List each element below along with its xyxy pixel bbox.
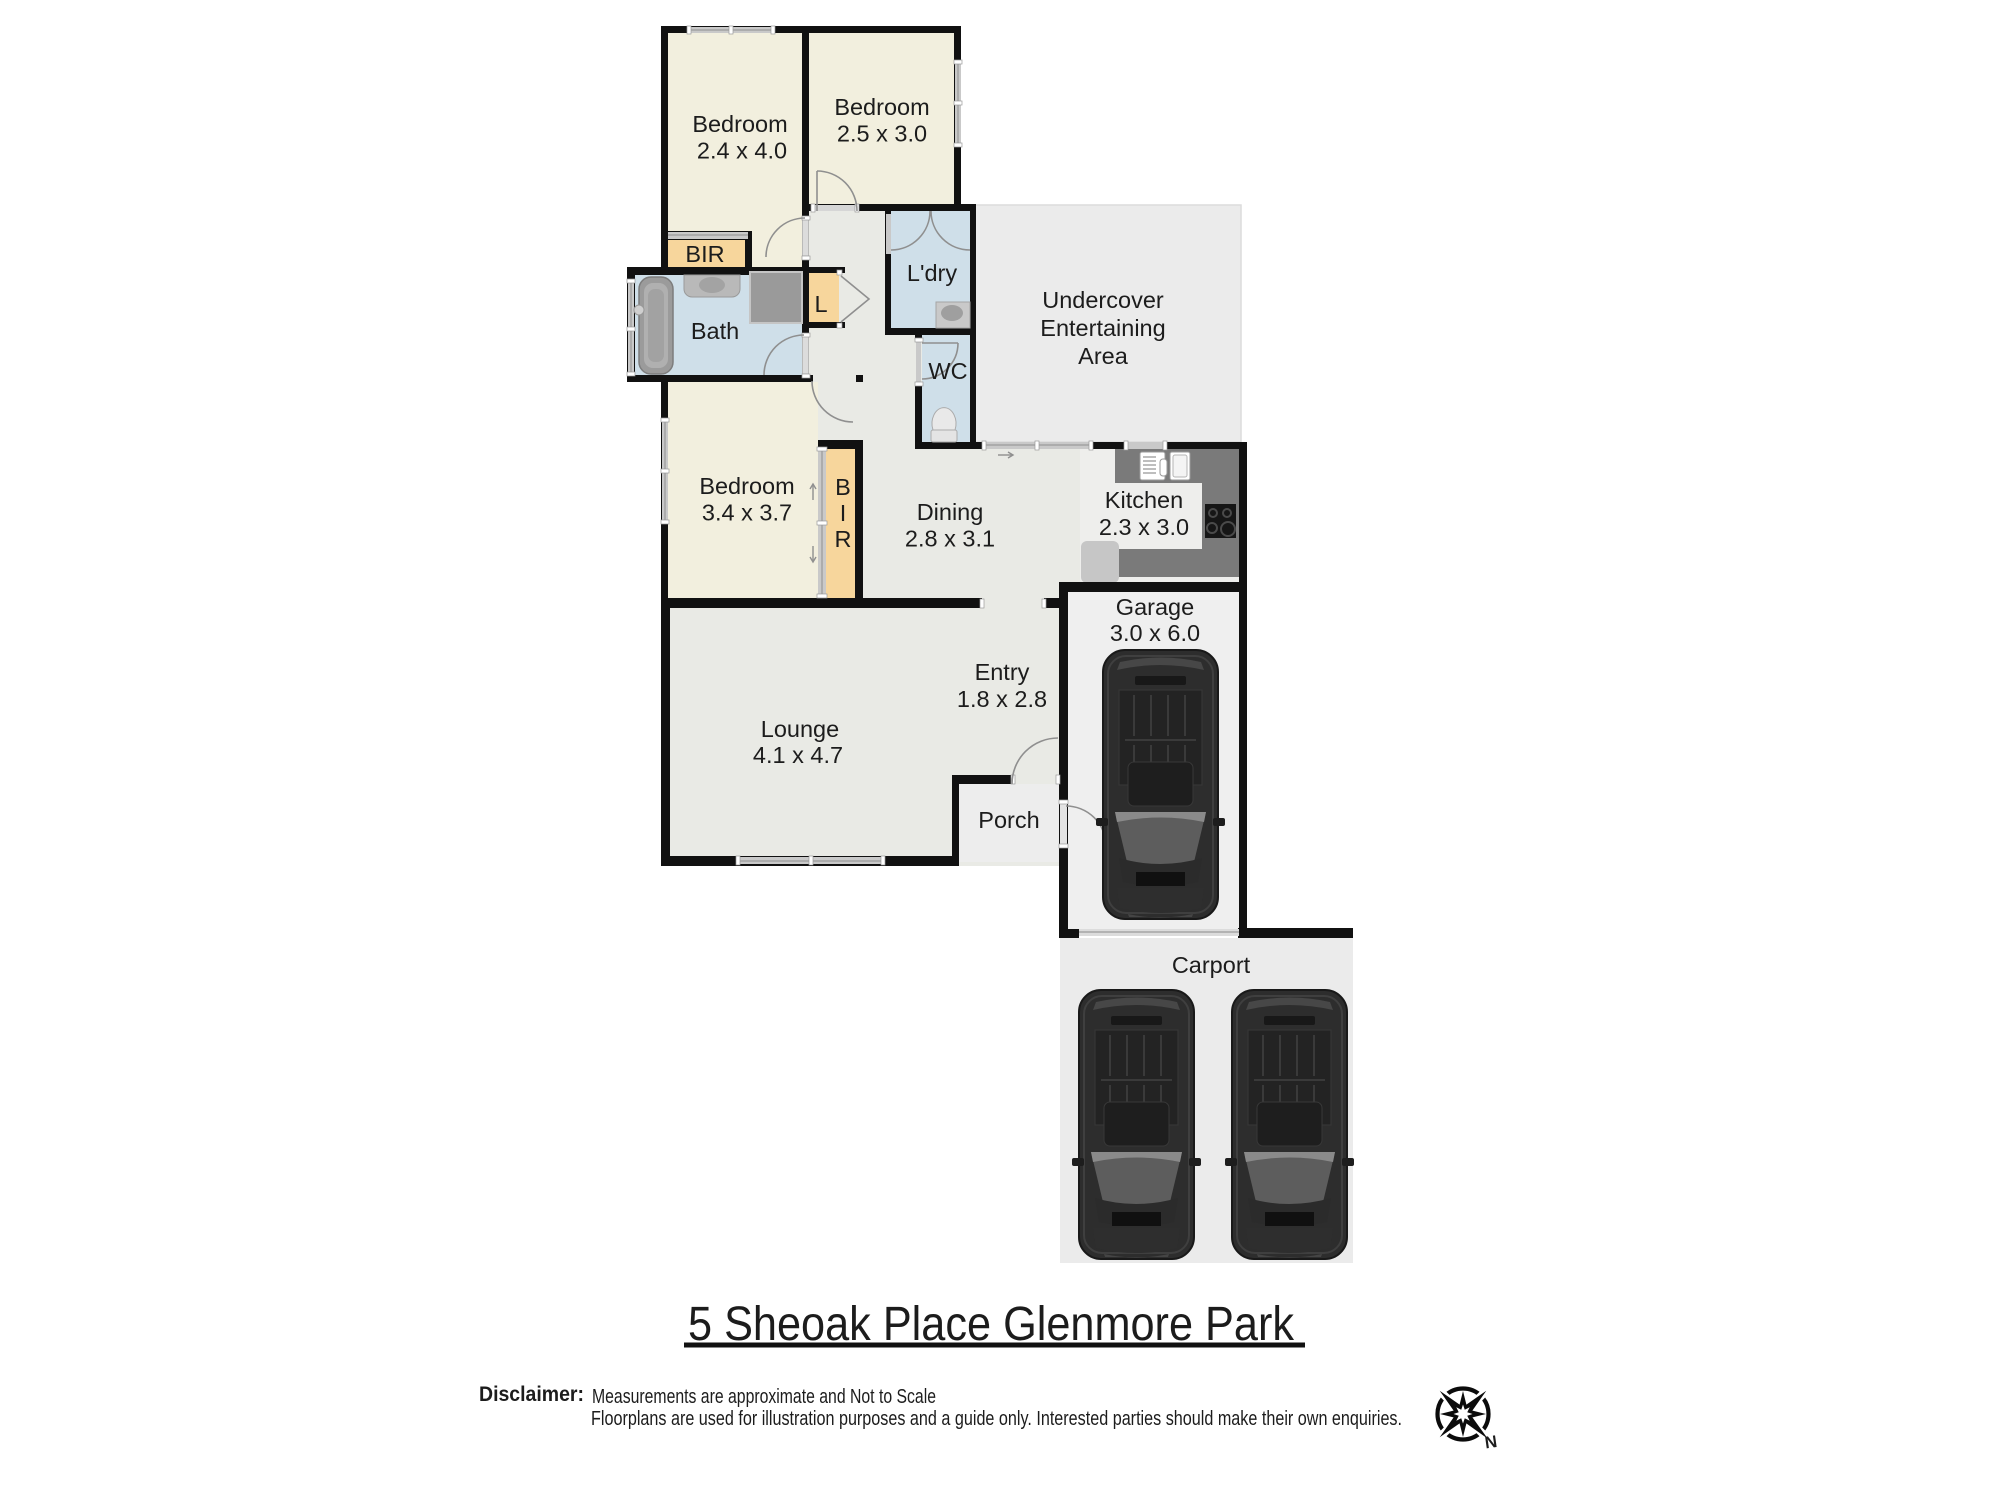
svg-text:L: L (814, 291, 827, 317)
svg-text:Kitchen: Kitchen (1105, 487, 1183, 513)
svg-text:B: B (835, 474, 851, 500)
svg-text:3.4 x 3.7: 3.4 x 3.7 (702, 500, 792, 526)
svg-text:1.8 x 2.8: 1.8 x 2.8 (957, 686, 1047, 712)
svg-text:L'dry: L'dry (907, 260, 957, 286)
svg-text:4.1 x 4.7: 4.1 x 4.7 (753, 742, 843, 768)
svg-text:Carport: Carport (1172, 952, 1251, 978)
svg-text:Floorplans are used for illust: Floorplans are used for illustration pur… (591, 1407, 1402, 1430)
svg-text:Entertaining: Entertaining (1040, 315, 1165, 341)
svg-text:R: R (835, 526, 852, 552)
svg-text:Dining: Dining (917, 499, 984, 525)
svg-text:Bedroom: Bedroom (834, 94, 929, 120)
svg-text:Lounge: Lounge (761, 716, 839, 742)
svg-text:Entry: Entry (975, 659, 1030, 685)
svg-text:2.3 x 3.0: 2.3 x 3.0 (1099, 514, 1189, 540)
svg-text:2.4 x 4.0: 2.4 x 4.0 (697, 138, 787, 164)
svg-text:Disclaimer:: Disclaimer: (479, 1383, 584, 1406)
svg-text:3.0 x 6.0: 3.0 x 6.0 (1110, 620, 1200, 646)
svg-text:N: N (1484, 1432, 1499, 1453)
svg-text:Area: Area (1078, 343, 1129, 369)
svg-text:BIR: BIR (685, 241, 724, 267)
svg-text:Undercover: Undercover (1042, 287, 1164, 313)
svg-text:WC: WC (928, 358, 967, 384)
svg-text:Bedroom: Bedroom (692, 111, 787, 137)
svg-text:2.5 x 3.0: 2.5 x 3.0 (837, 121, 927, 147)
svg-text:Garage: Garage (1116, 594, 1194, 620)
svg-text:Bedroom: Bedroom (699, 473, 794, 499)
svg-text:Measurements are approximate a: Measurements are approximate and Not to … (592, 1385, 936, 1408)
svg-text:Porch: Porch (978, 807, 1039, 833)
svg-text:Bath: Bath (691, 318, 739, 344)
svg-text:2.8 x 3.1: 2.8 x 3.1 (905, 526, 995, 552)
svg-text:I: I (840, 500, 847, 526)
